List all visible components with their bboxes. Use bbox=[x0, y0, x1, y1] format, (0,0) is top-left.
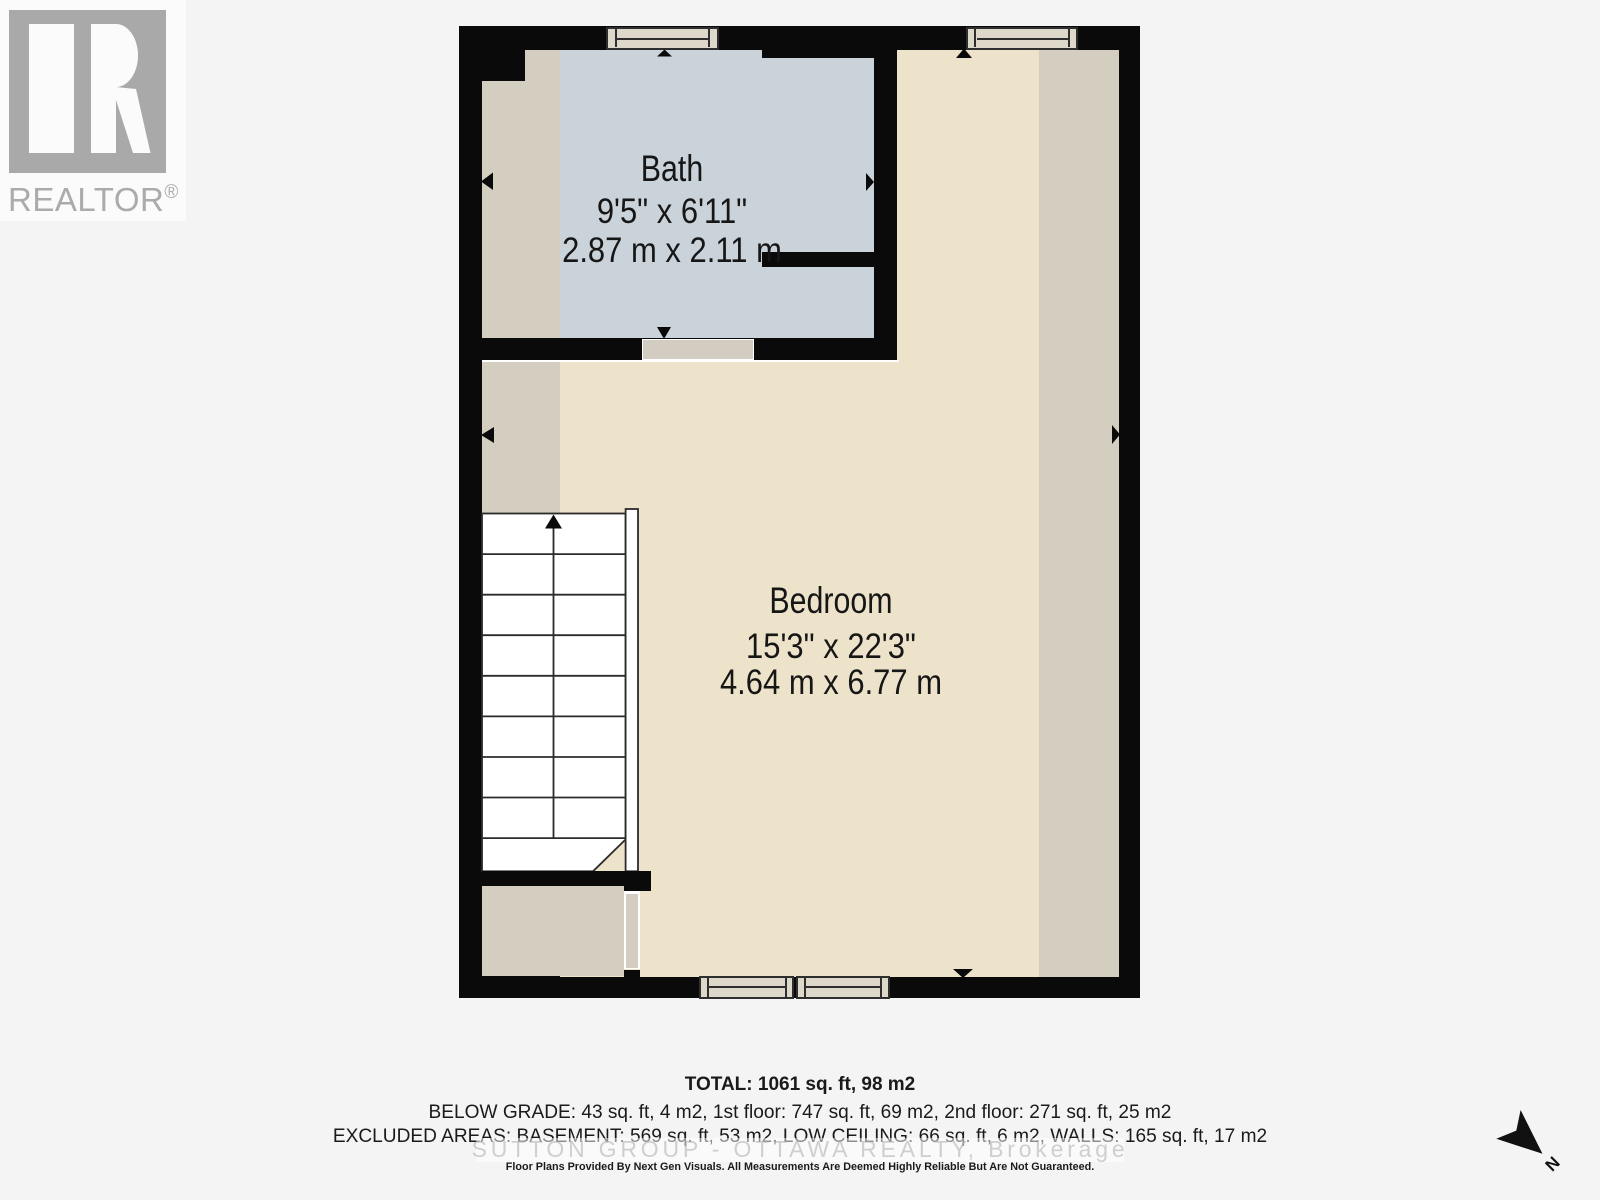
svg-text:N: N bbox=[1541, 1153, 1563, 1175]
